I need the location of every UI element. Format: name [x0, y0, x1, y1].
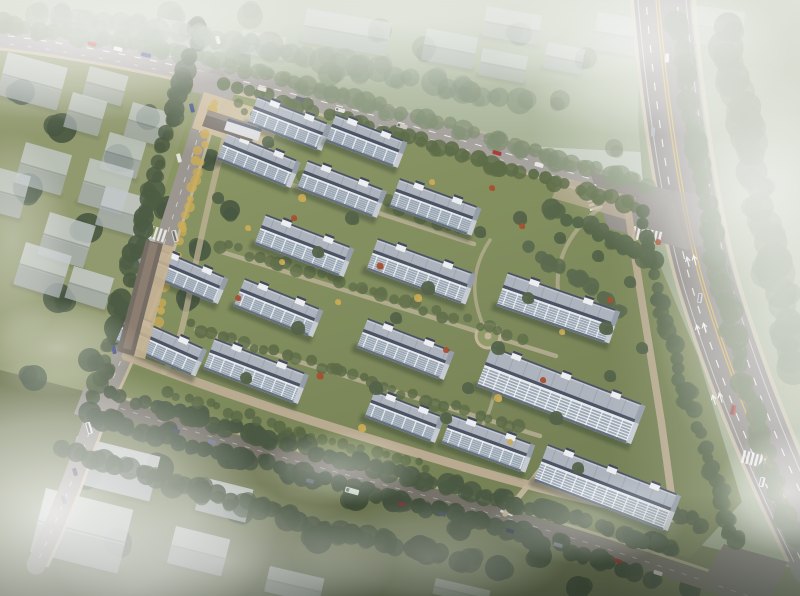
fog-overlay-layer — [0, 0, 800, 596]
fog-patch — [150, 80, 330, 160]
fog-patch — [253, 430, 423, 506]
fog-patch — [488, 475, 688, 565]
screenshot-root — [0, 0, 800, 596]
aerial-render — [0, 0, 800, 596]
